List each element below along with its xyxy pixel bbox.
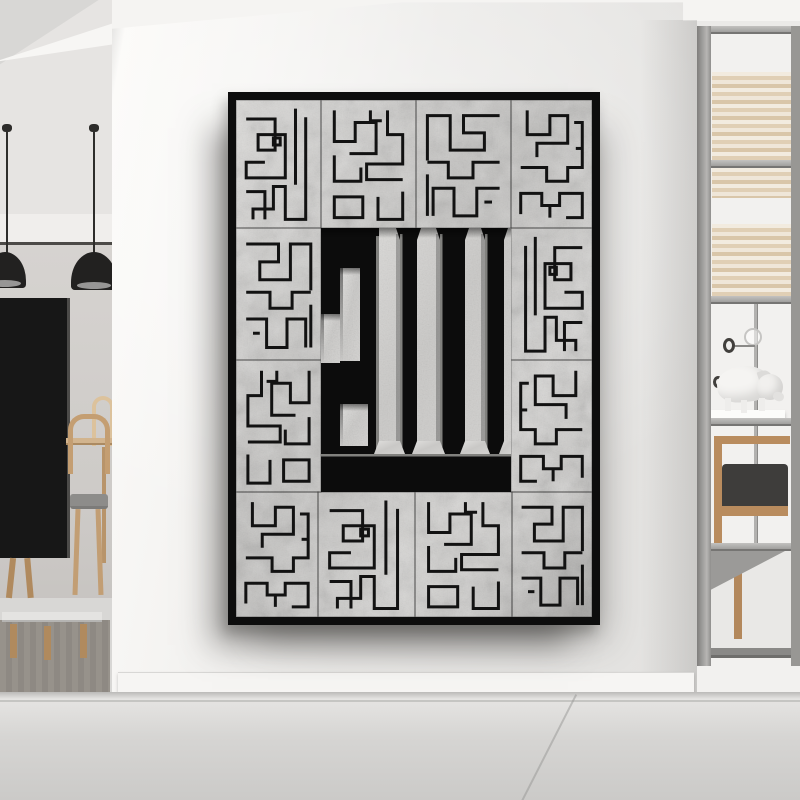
bench-leg: [44, 626, 51, 660]
shelf-plate: [697, 543, 800, 551]
pig-leg: [725, 398, 731, 411]
kufic-allah-panel: [236, 100, 592, 617]
bench-leg: [10, 624, 17, 658]
floor-seam: [521, 694, 577, 800]
wood-slat-reflection: [712, 224, 791, 296]
left-room: [0, 0, 112, 694]
glass-ornament: [744, 328, 762, 346]
floor-seam: [0, 700, 800, 702]
pendant-canopy: [2, 124, 12, 132]
bench-leg: [80, 624, 87, 658]
shelf-plate: [697, 160, 800, 168]
shelf-unit: [697, 26, 800, 692]
baseboard: [118, 672, 694, 692]
bench: [2, 612, 102, 622]
dining-chair: [68, 414, 110, 474]
lamp-rim: [0, 280, 21, 287]
round-mirror: [723, 338, 735, 353]
pig-leg: [741, 400, 747, 413]
shelf-side-panel: [791, 26, 800, 666]
wood-slat-reflection: [712, 72, 791, 198]
shelf-plate: [697, 296, 800, 304]
mirror-stem: [735, 345, 755, 347]
chair-seat: [70, 494, 108, 509]
interior-photo: [0, 0, 800, 800]
pendant-cord: [6, 130, 8, 256]
lamp-rim: [77, 282, 112, 289]
lounge-chair-cushion: [722, 464, 788, 510]
tv-panel: [0, 298, 70, 558]
lounge-chair-post: [714, 436, 722, 548]
shelf-base: [697, 648, 800, 658]
concrete-floor: [0, 692, 800, 800]
left-room-bulkhead: [0, 214, 112, 244]
shelf-side-panel: [697, 26, 711, 666]
wall-corner-shade: [640, 20, 697, 692]
pig-leg: [759, 398, 765, 411]
lounge-chair-front: [722, 506, 788, 516]
shelf-plate: [697, 418, 800, 426]
kufic-calligraphy-artwork: [228, 92, 600, 625]
pendant-cord: [93, 130, 95, 256]
pendant-canopy: [89, 124, 99, 132]
pig-snout: [772, 391, 785, 403]
shelf-plate: [697, 26, 800, 34]
lounge-chair-rail: [714, 436, 790, 444]
